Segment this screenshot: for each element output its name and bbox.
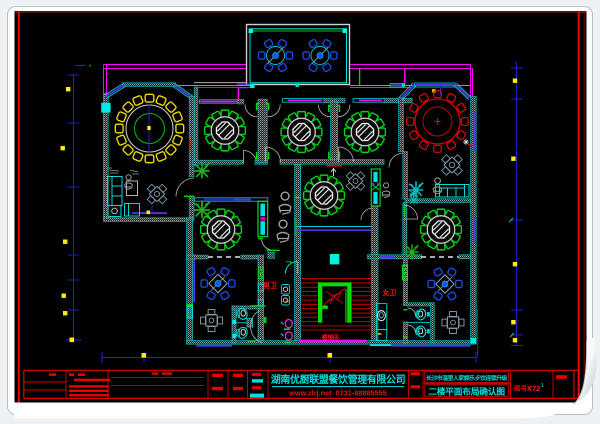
- svg-text:长沙市温里人家娱乐歺饮连锁升级: 长沙市温里人家娱乐歺饮连锁升级: [426, 374, 507, 382]
- svg-text:1: 1: [541, 383, 544, 389]
- svg-text:www.zlrj.net 0731-88885555: www.zlrj.net 0731-88885555: [288, 389, 386, 398]
- svg-text:女卫: 女卫: [383, 288, 397, 297]
- svg-text:男卫: 男卫: [263, 282, 277, 290]
- svg-text:-楼梯间-: -楼梯间-: [320, 333, 341, 341]
- svg-text:二楼平面布局确认图: 二楼平面布局确认图: [428, 385, 505, 396]
- svg-text:X72: X72: [527, 384, 540, 393]
- svg-text:湖南优厨联盟餐饮管理有限公司: 湖南优厨联盟餐饮管理有限公司: [271, 373, 406, 386]
